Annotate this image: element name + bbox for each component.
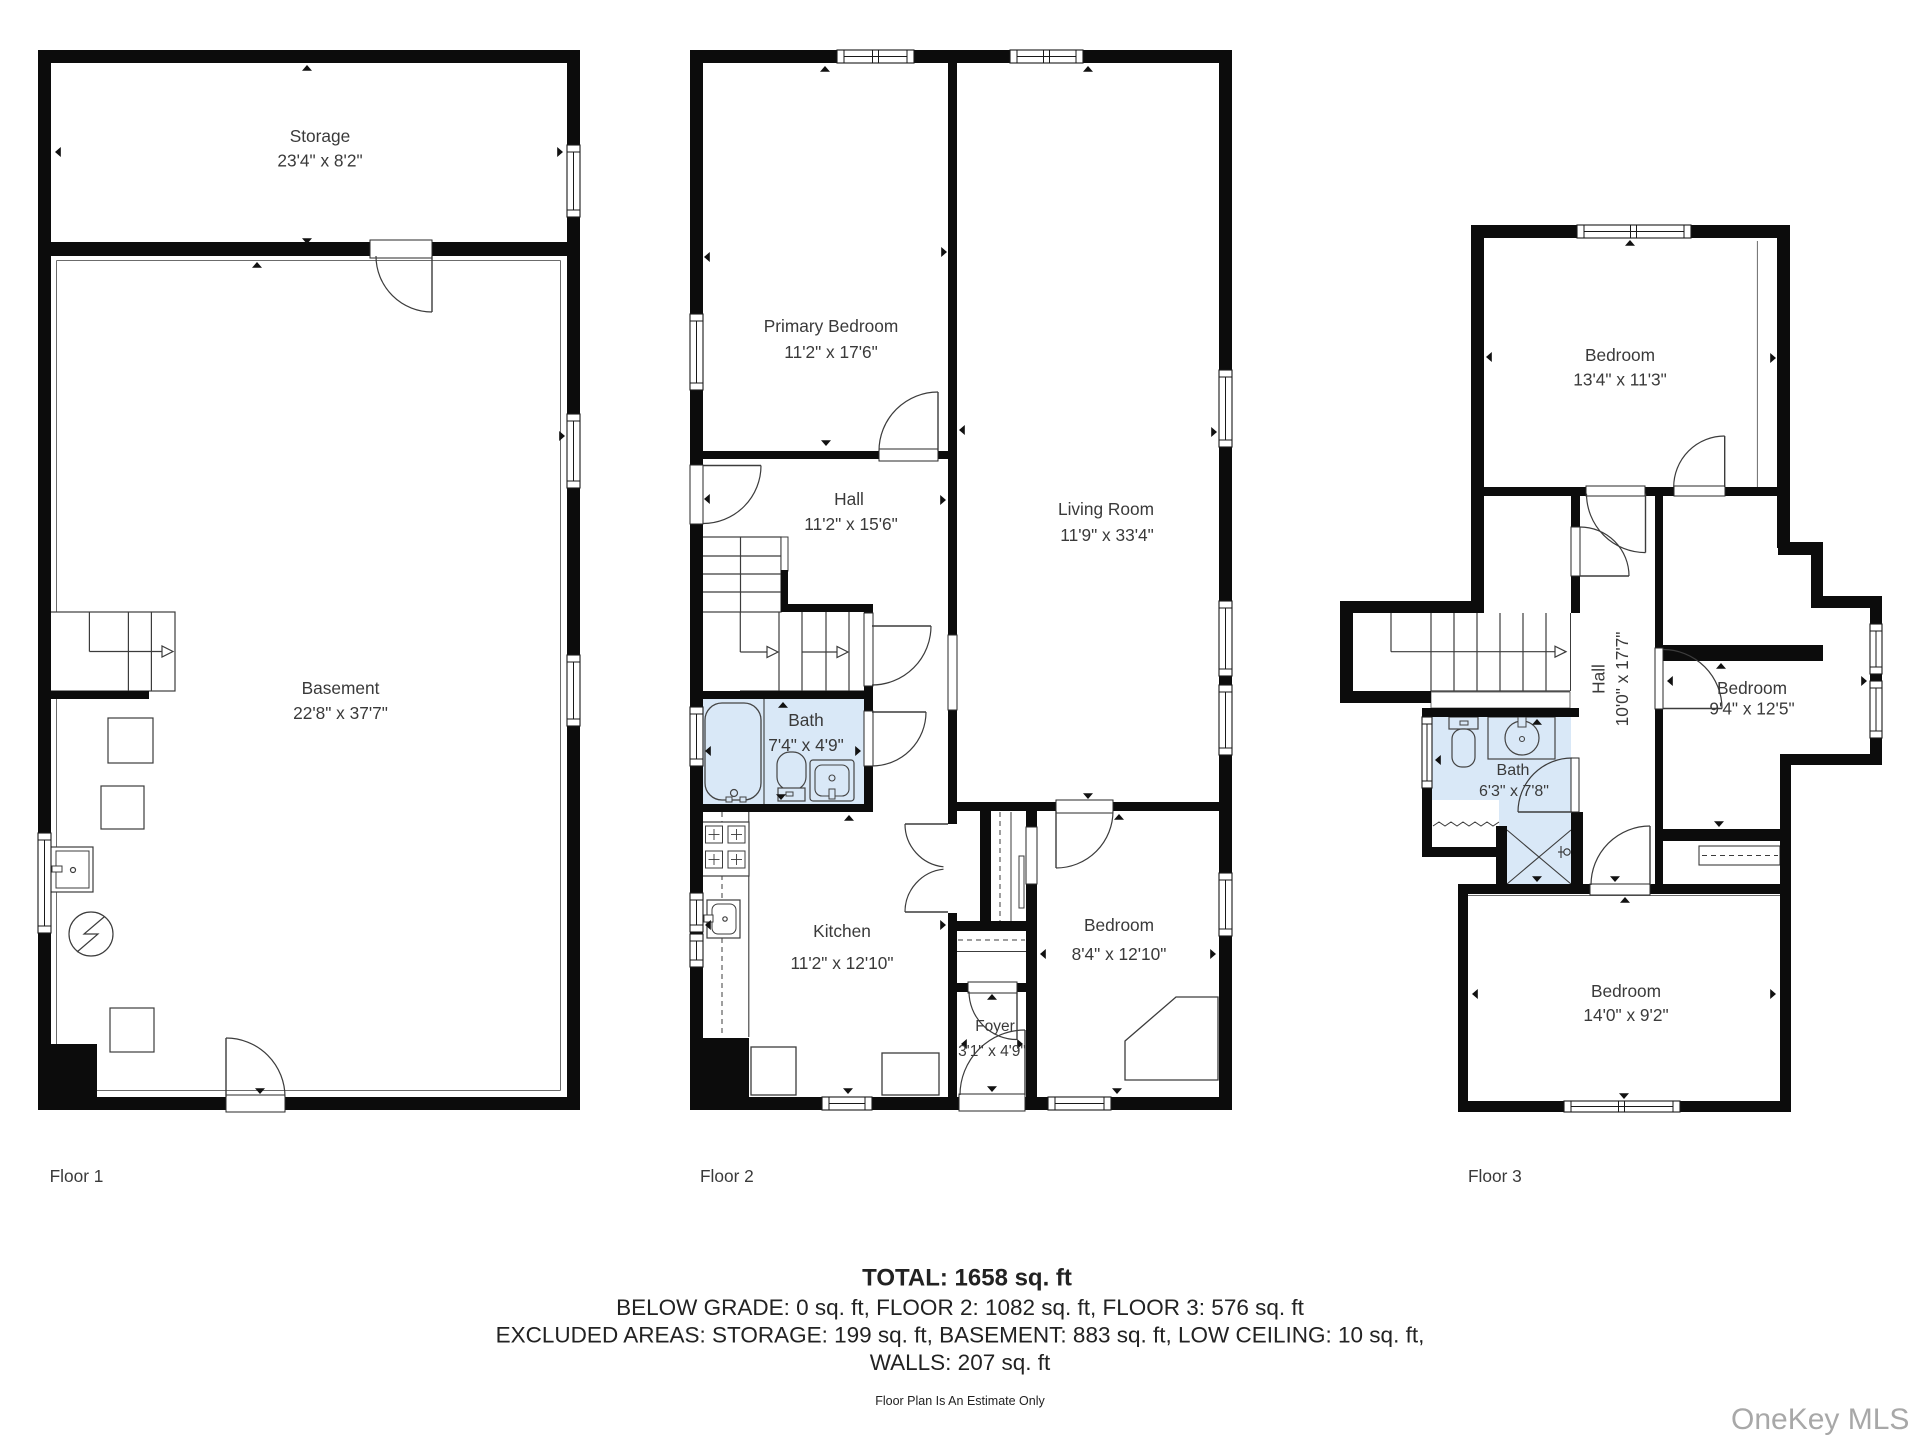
svg-text:11'9" x 33'4": 11'9" x 33'4" <box>1060 525 1154 545</box>
svg-text:TOTAL: 1658 sq. ft: TOTAL: 1658 sq. ft <box>862 1265 1072 1292</box>
svg-text:BELOW GRADE: 0 sq. ft, FLOOR 2: BELOW GRADE: 0 sq. ft, FLOOR 2: 1082 sq.… <box>616 1295 1305 1320</box>
svg-text:11'2" x 12'10": 11'2" x 12'10" <box>790 953 893 973</box>
svg-text:11'2" x 15'6": 11'2" x 15'6" <box>804 514 898 534</box>
svg-text:Living Room: Living Room <box>1058 499 1154 519</box>
svg-text:EXCLUDED AREAS: STORAGE: 199 s: EXCLUDED AREAS: STORAGE: 199 sq. ft, BAS… <box>496 1323 1425 1348</box>
svg-text:7'4" x 4'9": 7'4" x 4'9" <box>768 735 844 755</box>
svg-text:14'0" x 9'2": 14'0" x 9'2" <box>1583 1005 1668 1025</box>
svg-text:Floor Plan Is An Estimate Only: Floor Plan Is An Estimate Only <box>875 1394 1045 1408</box>
svg-text:11'2" x 17'6": 11'2" x 17'6" <box>784 342 878 362</box>
svg-text:Foyer: Foyer <box>975 1018 1015 1035</box>
svg-text:Floor 3: Floor 3 <box>1468 1166 1522 1186</box>
svg-text:Bedroom: Bedroom <box>1717 678 1787 698</box>
svg-text:Bath: Bath <box>1497 762 1530 779</box>
svg-text:Bedroom: Bedroom <box>1591 981 1661 1001</box>
svg-text:9'4" x 12'5": 9'4" x 12'5" <box>1709 699 1794 719</box>
svg-text:13'4" x 11'3": 13'4" x 11'3" <box>1573 370 1667 390</box>
svg-text:Floor 2: Floor 2 <box>700 1166 754 1186</box>
svg-text:Kitchen: Kitchen <box>813 921 871 941</box>
svg-text:Floor 1: Floor 1 <box>50 1166 104 1186</box>
svg-text:Bedroom: Bedroom <box>1084 915 1154 935</box>
svg-text:Bedroom: Bedroom <box>1585 345 1655 365</box>
svg-text:Bath: Bath <box>788 710 824 730</box>
svg-text:Basement: Basement <box>302 678 380 698</box>
svg-text:10'0" x 17'7": 10'0" x 17'7" <box>1612 632 1632 727</box>
svg-text:OneKey MLS: OneKey MLS <box>1731 1403 1909 1436</box>
svg-text:Primary Bedroom: Primary Bedroom <box>764 316 898 336</box>
svg-text:22'8" x 37'7": 22'8" x 37'7" <box>293 703 388 723</box>
svg-text:Hall: Hall <box>834 489 864 509</box>
svg-text:23'4" x 8'2": 23'4" x 8'2" <box>277 151 362 171</box>
svg-text:8'4" x 12'10": 8'4" x 12'10" <box>1072 944 1167 964</box>
svg-text:Hall: Hall <box>1589 664 1609 694</box>
svg-text:3'1" x 4'9": 3'1" x 4'9" <box>958 1043 1026 1060</box>
svg-text:WALLS: 207 sq. ft: WALLS: 207 sq. ft <box>870 1350 1051 1375</box>
svg-text:6'3" x 7'8": 6'3" x 7'8" <box>1479 783 1549 800</box>
svg-text:Storage: Storage <box>290 126 351 146</box>
